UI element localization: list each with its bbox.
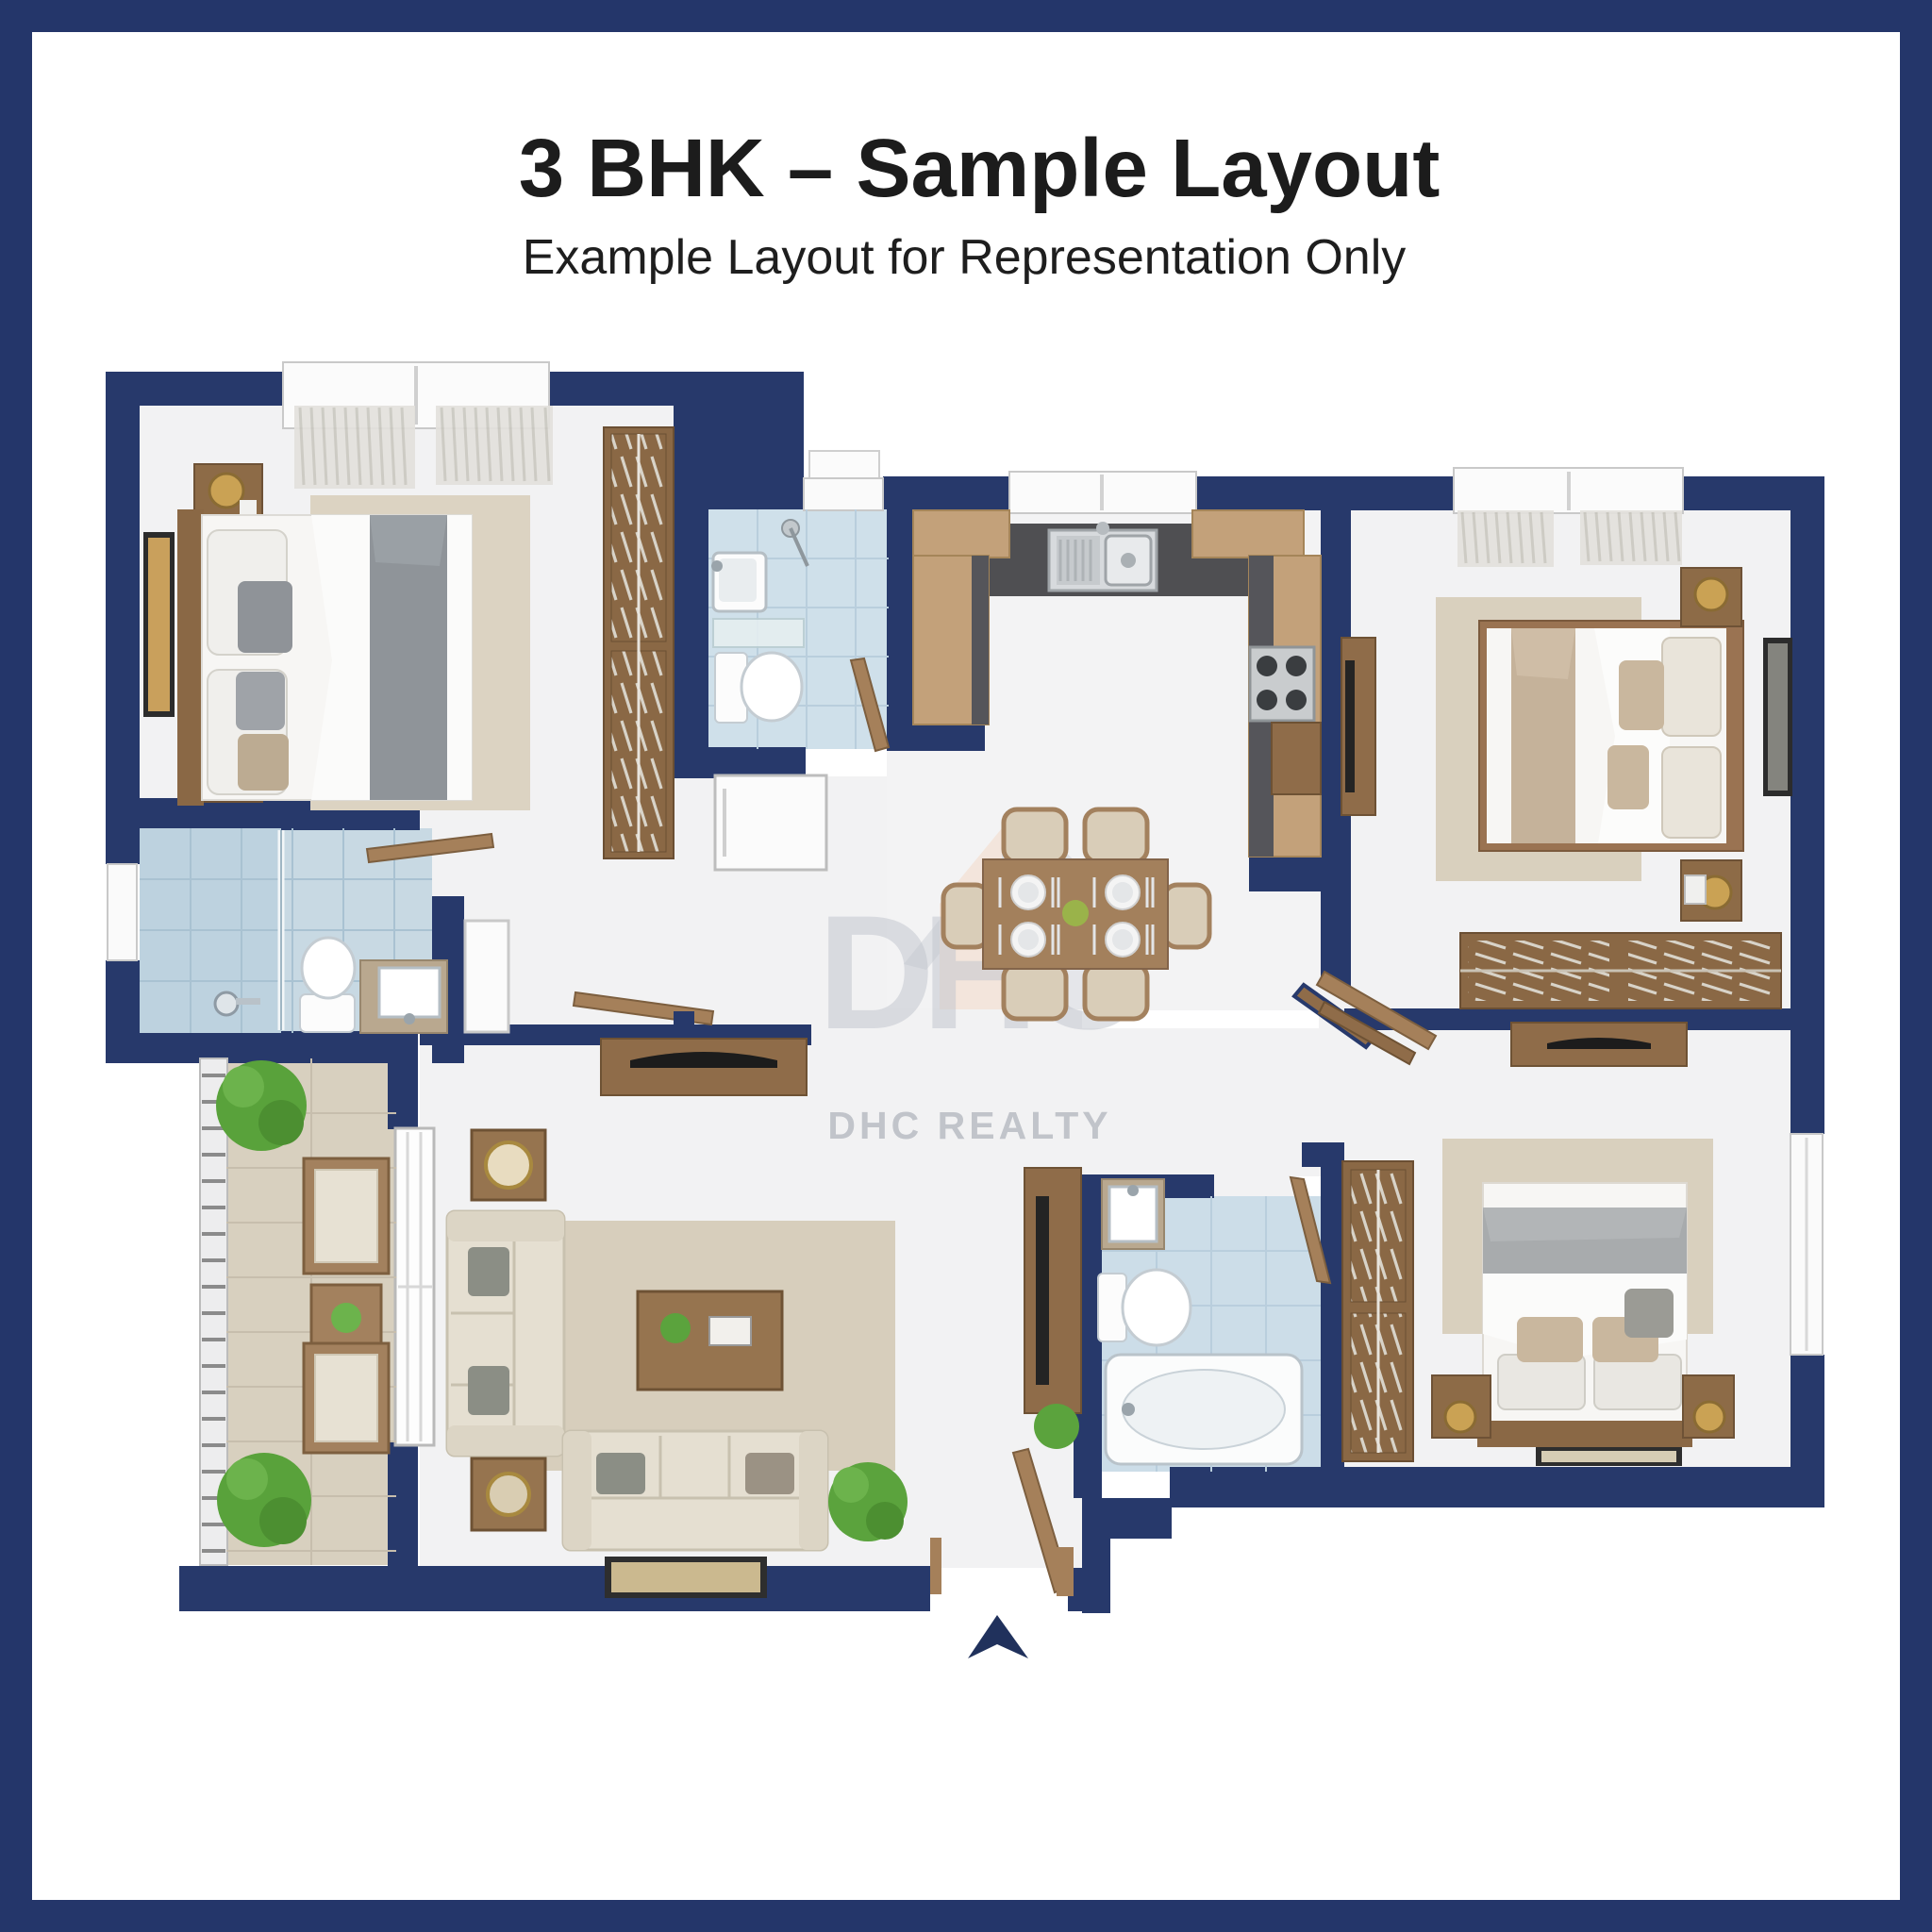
- svg-text:Example Layout for Representat: Example Layout for Representation Only: [523, 230, 1407, 285]
- svg-text:3 BHK – Sample Layout: 3 BHK – Sample Layout: [519, 123, 1441, 214]
- svg-text:DHC REALTY: DHC REALTY: [827, 1104, 1111, 1147]
